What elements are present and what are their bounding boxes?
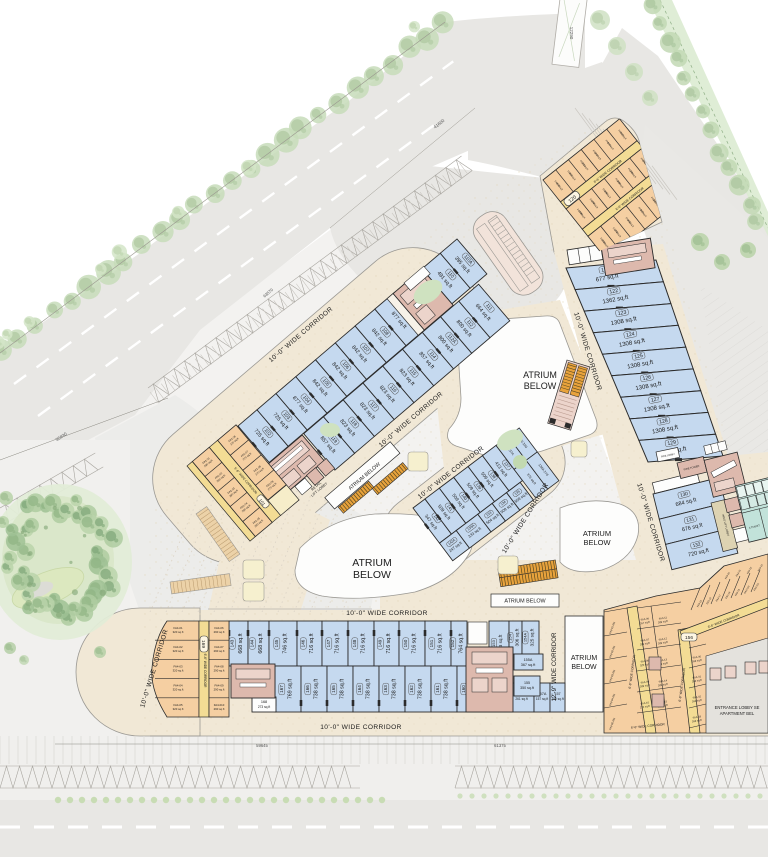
svg-text:738 sq.ft: 738 sq.ft bbox=[339, 678, 345, 699]
svg-text:320 sq.ft: 320 sq.ft bbox=[173, 649, 184, 653]
svg-text:12'-9" WIDE CORRIDOR: 12'-9" WIDE CORRIDOR bbox=[551, 632, 558, 702]
svg-text:BELOW: BELOW bbox=[524, 381, 557, 391]
svg-text:152: 152 bbox=[450, 639, 455, 647]
svg-text:320 sq.ft: 320 sq.ft bbox=[173, 707, 184, 711]
svg-text:320 sq.ft: 320 sq.ft bbox=[173, 668, 184, 672]
svg-text:325 sq.ft: 325 sq.ft bbox=[530, 628, 535, 646]
svg-text:273 sq.ft: 273 sq.ft bbox=[258, 705, 270, 709]
svg-text:10'-0" WIDE CORRIDOR: 10'-0" WIDE CORRIDOR bbox=[320, 724, 402, 731]
svg-text:144: 144 bbox=[250, 639, 255, 647]
svg-text:154A: 154A bbox=[523, 632, 528, 642]
svg-text:320 sq.ft: 320 sq.ft bbox=[173, 688, 184, 692]
svg-text:ATRIUM: ATRIUM bbox=[352, 557, 391, 569]
svg-text:ATRIUM: ATRIUM bbox=[583, 529, 611, 538]
svg-text:746 sq.ft: 746 sq.ft bbox=[282, 633, 288, 654]
svg-text:668 sq.ft: 668 sq.ft bbox=[238, 633, 244, 654]
svg-text:738 sq.ft: 738 sq.ft bbox=[365, 678, 371, 699]
svg-text:166: 166 bbox=[305, 685, 310, 693]
svg-text:716 sq.ft: 716 sq.ft bbox=[437, 633, 443, 654]
svg-text:BELOW: BELOW bbox=[353, 569, 391, 581]
svg-text:716 sq.ft: 716 sq.ft bbox=[386, 633, 392, 654]
svg-text:320 sq.ft: 320 sq.ft bbox=[173, 630, 184, 634]
svg-text:716 sq.ft: 716 sq.ft bbox=[360, 633, 366, 654]
svg-text:ATRIUM BELOW: ATRIUM BELOW bbox=[504, 599, 546, 605]
svg-text:738 sq.ft: 738 sq.ft bbox=[391, 678, 397, 699]
svg-text:12290: 12290 bbox=[569, 27, 574, 40]
svg-text:BELOW: BELOW bbox=[583, 538, 611, 547]
svg-text:155A: 155A bbox=[524, 658, 533, 662]
svg-text:157 sq.ft: 157 sq.ft bbox=[536, 697, 548, 701]
svg-text:BELOW: BELOW bbox=[571, 664, 597, 671]
svg-text:350 sq.ft: 350 sq.ft bbox=[520, 686, 534, 690]
svg-text:161: 161 bbox=[435, 685, 440, 693]
svg-text:716 sq.ft: 716 sq.ft bbox=[309, 633, 315, 654]
svg-text:290 sq.ft: 290 sq.ft bbox=[214, 707, 225, 711]
svg-text:143: 143 bbox=[230, 639, 235, 647]
svg-text:169: 169 bbox=[200, 640, 206, 648]
svg-text:ATRIUM: ATRIUM bbox=[523, 370, 557, 380]
svg-text:153: 153 bbox=[491, 639, 496, 646]
svg-text:155: 155 bbox=[524, 681, 530, 685]
svg-text:147: 147 bbox=[326, 639, 331, 647]
svg-text:156: 156 bbox=[685, 635, 693, 641]
svg-text:ATRIUM: ATRIUM bbox=[571, 655, 597, 662]
svg-text:261 sq.ft: 261 sq.ft bbox=[515, 697, 527, 701]
svg-text:149: 149 bbox=[378, 639, 383, 647]
svg-text:162: 162 bbox=[409, 685, 414, 693]
svg-text:10'-0" WIDE CORRIDOR: 10'-0" WIDE CORRIDOR bbox=[346, 610, 428, 617]
svg-text:290 sq.ft: 290 sq.ft bbox=[214, 630, 225, 634]
svg-text:764 sq.ft: 764 sq.ft bbox=[458, 633, 464, 654]
svg-text:290 sq.ft: 290 sq.ft bbox=[214, 688, 225, 692]
svg-text:6'-6" WIDE CORRIDOR: 6'-6" WIDE CORRIDOR bbox=[203, 654, 207, 688]
svg-text:167: 167 bbox=[279, 685, 284, 693]
svg-text:290 sq.ft: 290 sq.ft bbox=[214, 649, 225, 653]
svg-text:160: 160 bbox=[461, 685, 466, 693]
svg-text:165: 165 bbox=[331, 685, 336, 693]
svg-text:716 sq.ft: 716 sq.ft bbox=[334, 633, 340, 654]
svg-text:367 sq.ft: 367 sq.ft bbox=[521, 663, 537, 667]
svg-text:APARTMENT BEL: APARTMENT BEL bbox=[720, 711, 755, 716]
svg-text:738 sq.ft: 738 sq.ft bbox=[313, 678, 319, 699]
svg-text:146: 146 bbox=[301, 639, 306, 647]
svg-text:668 sq.ft: 668 sq.ft bbox=[258, 633, 264, 654]
svg-text:168: 168 bbox=[261, 700, 267, 704]
svg-text:148: 148 bbox=[352, 639, 357, 647]
svg-text:738 sq.ft: 738 sq.ft bbox=[417, 678, 423, 699]
svg-text:ENTRANCE LOBBY SE: ENTRANCE LOBBY SE bbox=[715, 705, 760, 710]
svg-text:154: 154 bbox=[508, 633, 513, 640]
svg-text:164: 164 bbox=[357, 685, 362, 693]
svg-text:163: 163 bbox=[383, 685, 388, 693]
svg-text:290 sq.ft: 290 sq.ft bbox=[214, 668, 225, 672]
svg-text:150: 150 bbox=[403, 639, 408, 647]
svg-text:306 sq.ft: 306 sq.ft bbox=[515, 628, 520, 646]
svg-text:151: 151 bbox=[429, 639, 434, 647]
svg-text:145: 145 bbox=[274, 639, 279, 647]
svg-text:769 sq.ft: 769 sq.ft bbox=[287, 678, 293, 699]
svg-text:716 sq.ft: 716 sq.ft bbox=[411, 633, 417, 654]
svg-text:738 sq.ft: 738 sq.ft bbox=[443, 678, 449, 699]
